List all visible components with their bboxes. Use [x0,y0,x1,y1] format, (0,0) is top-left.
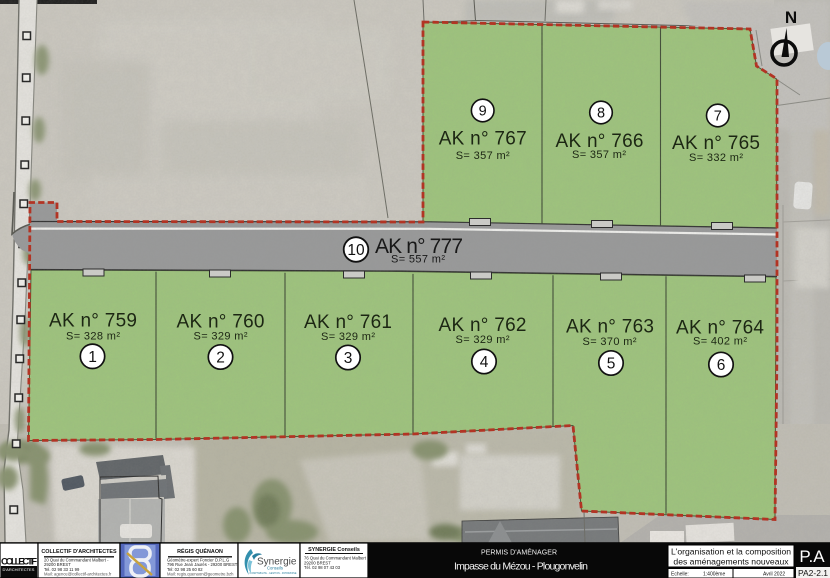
svg-text:10: 10 [347,242,365,259]
svg-text:S= 357 m²: S= 357 m² [456,150,510,162]
svg-text:RÉGIS QUÉNAON: RÉGIS QUÉNAON [177,547,223,555]
svg-text:AK n° 761: AK n° 761 [304,312,392,333]
svg-text:5: 5 [607,356,616,373]
svg-text:7: 7 [714,109,722,125]
svg-text:SYNERGIE Conseils: SYNERGIE Conseils [308,547,360,553]
svg-text:AK n° 765: AK n° 765 [672,133,760,154]
svg-text:Echelle:: Echelle: [671,572,689,578]
svg-text:S= 357 m²: S= 357 m² [572,149,626,161]
svg-text:Conseils: Conseils [267,566,283,571]
svg-text:AK n° 762: AK n° 762 [439,315,527,336]
svg-text:S= 402 m²: S= 402 m² [693,336,747,348]
svg-text:Mail: regis.quenaon@geometre.b: Mail: regis.quenaon@geometre.bzh [167,572,234,577]
svg-text:1: 1 [88,349,97,366]
svg-text:9: 9 [479,104,487,120]
svg-text:S= 370 m²: S= 370 m² [583,336,637,348]
svg-text:1:400ème: 1:400ème [703,572,725,578]
svg-text:Impasse du Mézou - Plougonveli: Impasse du Mézou - Plougonvelin [454,561,588,573]
svg-text:L'organisation et la compositi: L'organisation et la composition [671,547,791,557]
svg-text:Tél. 02 98 07 43 03: Tél. 02 98 07 43 03 [304,565,341,570]
svg-text:N: N [785,8,797,27]
svg-text:des aménagements nouveaux: des aménagements nouveaux [673,557,789,567]
svg-text:S= 329 m²: S= 329 m² [194,331,248,343]
svg-text:AK n° 760: AK n° 760 [177,311,265,332]
svg-text:AK n° 763: AK n° 763 [566,317,654,338]
svg-text:2: 2 [216,350,225,367]
svg-text:S= 329 m²: S= 329 m² [321,331,375,343]
svg-text:8: 8 [597,106,605,122]
svg-text:Mail: agence@collectif-archite: Mail: agence@collectif-architectes.fr [44,572,112,577]
svg-text:6: 6 [717,357,726,374]
svg-text:4: 4 [480,354,489,371]
svg-text:Avril 2022: Avril 2022 [763,572,785,578]
svg-text:PA2-2.1: PA2-2.1 [798,568,828,578]
svg-text:S= 332 m²: S= 332 m² [689,152,743,164]
svg-text:S= 557 m²: S= 557 m² [391,254,445,266]
svg-text:COLLECTIF D'ARCHITECTES: COLLECTIF D'ARCHITECTES [41,549,117,555]
svg-text:AK n° 767: AK n° 767 [439,129,527,150]
svg-text:P.A: P.A [799,547,825,566]
svg-text:S= 328 m²: S= 328 m² [66,331,120,343]
svg-text:PERMIS D'AMÉNAGER: PERMIS D'AMÉNAGER [481,548,557,557]
svg-text:D'ARCHITECTES: D'ARCHITECTES [3,567,35,572]
svg-text:COLLECTIF: COLLECTIF [1,557,37,568]
svg-text:AK n° 759: AK n° 759 [49,311,137,332]
svg-text:COMPTABILITE - GESTION - PATRI: COMPTABILITE - GESTION - PATRIMOINE [250,572,297,575]
svg-text:S= 329 m²: S= 329 m² [456,334,510,346]
svg-text:3: 3 [344,350,353,367]
